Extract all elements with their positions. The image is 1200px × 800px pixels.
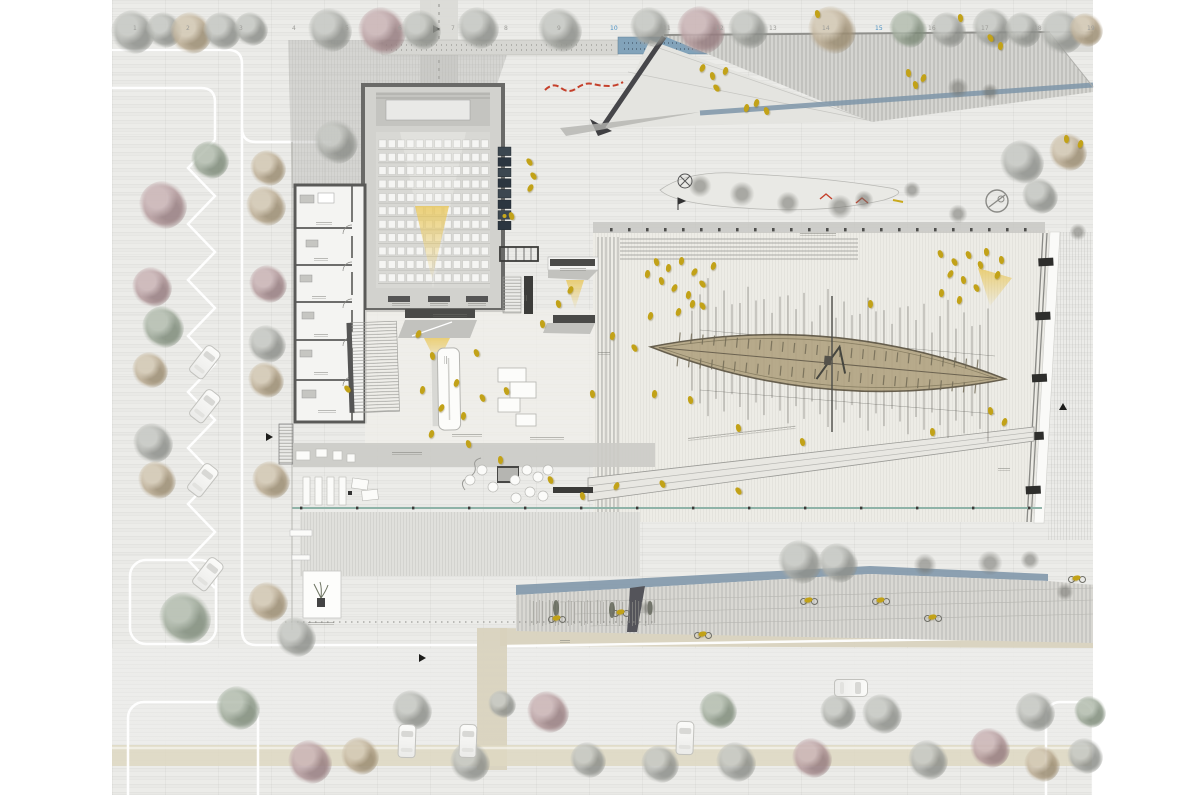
tree — [252, 461, 290, 499]
grid-number: 19 — [1087, 26, 1095, 32]
tree — [216, 686, 260, 730]
grid-number: 3 — [239, 26, 243, 32]
red-dashed-squiggle — [545, 82, 623, 91]
windshield — [203, 350, 216, 362]
cyclist-figure — [800, 596, 818, 605]
grid-number: 11 — [663, 26, 671, 32]
plan-annotation — [998, 468, 1010, 471]
tree — [248, 325, 286, 363]
sculpture-plot — [303, 571, 341, 618]
bush — [827, 194, 853, 220]
cyclist-figure — [1068, 574, 1086, 583]
person-figure — [930, 428, 935, 436]
plan-annotation — [433, 314, 467, 317]
tree — [132, 267, 172, 307]
auditorium — [363, 85, 511, 310]
bush — [729, 181, 755, 207]
windshield — [201, 468, 214, 480]
tree — [862, 694, 902, 734]
tree — [133, 423, 173, 463]
person-figure — [1064, 135, 1069, 143]
person-figure — [540, 320, 546, 328]
windshield — [679, 728, 691, 734]
bush — [948, 204, 968, 224]
tree — [138, 461, 176, 499]
tree — [818, 543, 858, 583]
bush — [776, 191, 800, 215]
tree — [792, 738, 832, 778]
bush — [1069, 223, 1087, 241]
plan-annotation — [560, 268, 586, 271]
cyclist-figure — [548, 614, 566, 623]
grid-number: 2 — [186, 26, 190, 32]
cyclist-figure — [612, 608, 630, 617]
tree — [908, 740, 948, 780]
main-stair — [350, 321, 399, 413]
grid-number: 14 — [822, 26, 830, 32]
cyclist-figure — [694, 630, 712, 639]
windshield — [206, 562, 219, 574]
tree — [970, 728, 1010, 768]
tree — [159, 592, 211, 644]
tree — [142, 306, 184, 348]
windshield — [855, 682, 861, 694]
plan-annotation — [444, 356, 447, 364]
grid-number: 17 — [981, 26, 989, 32]
plan-annotation — [452, 434, 482, 437]
bush — [903, 181, 921, 199]
windshield — [462, 731, 474, 737]
grid-number: 6 — [398, 26, 402, 32]
rear-window — [196, 576, 208, 587]
grid-number: 4 — [292, 26, 296, 32]
bush — [1056, 583, 1074, 601]
tree — [1069, 13, 1103, 47]
cyclist-figure — [924, 613, 942, 622]
plan-annotation — [468, 303, 486, 306]
tree — [250, 150, 286, 186]
rear-window — [191, 482, 203, 493]
tree — [457, 7, 499, 49]
rear-window — [462, 748, 474, 752]
grid-number: 7 — [451, 26, 455, 32]
bush — [854, 190, 874, 210]
tree — [570, 742, 606, 778]
cyclist-figure — [872, 596, 890, 605]
tree — [488, 690, 516, 718]
tree — [132, 352, 168, 388]
tree — [288, 740, 332, 784]
road-car — [397, 724, 416, 759]
bush — [981, 83, 999, 101]
person-figure — [906, 69, 912, 77]
tree — [527, 691, 569, 733]
west-stair — [279, 424, 293, 464]
person-figure — [498, 456, 503, 464]
tree — [1024, 746, 1060, 782]
tree — [248, 362, 284, 398]
tree — [341, 737, 379, 775]
person-figure — [999, 256, 1005, 264]
grid-number: 10 — [610, 26, 618, 32]
plan-annotation — [430, 303, 448, 306]
grid-number: 9 — [557, 26, 561, 32]
tree — [1067, 738, 1103, 774]
plan-annotation — [316, 222, 332, 225]
windshield — [401, 731, 413, 737]
grid-number: 18 — [1034, 26, 1042, 32]
grid-number: 1 — [133, 26, 137, 32]
plan-annotation — [392, 303, 410, 306]
tree — [820, 694, 856, 730]
glass-facade-line — [292, 507, 1042, 510]
road-car — [675, 721, 694, 756]
tree — [1022, 178, 1058, 214]
plan-annotation — [530, 437, 564, 440]
person-figure — [868, 300, 873, 308]
plan-annotation — [314, 372, 328, 375]
tree — [191, 141, 229, 179]
bush — [977, 550, 1003, 576]
plan-annotation — [524, 295, 527, 301]
rear-window — [679, 745, 691, 749]
plan-annotation — [392, 452, 422, 455]
tree — [246, 186, 286, 226]
person-figure — [590, 390, 596, 398]
rear-window — [193, 408, 205, 419]
site-plan-canvas: 12345678910111213141516171819 — [0, 0, 1200, 800]
tree — [889, 10, 927, 48]
grid-number: 13 — [769, 26, 777, 32]
tree — [716, 742, 756, 782]
person-figure — [984, 248, 989, 256]
tree — [1015, 692, 1055, 732]
tree — [249, 265, 287, 303]
grid-number: 5 — [345, 26, 349, 32]
grid-number: 8 — [504, 26, 508, 32]
windshield — [203, 394, 216, 406]
tree — [139, 181, 187, 229]
bush — [913, 553, 937, 577]
road-car — [458, 724, 477, 759]
tree — [1074, 696, 1106, 728]
bush — [1020, 550, 1040, 570]
bush — [947, 77, 969, 99]
plan-annotation — [598, 352, 610, 355]
plan-annotation — [314, 334, 328, 337]
tree — [248, 582, 288, 622]
tree — [641, 745, 679, 783]
plan-annotation — [308, 622, 334, 625]
rear-window — [840, 682, 844, 694]
entrance-light-cone — [566, 280, 584, 309]
road-car — [834, 679, 868, 697]
rear-window — [401, 748, 413, 752]
plan-annotation — [314, 258, 328, 261]
plan-annotation — [560, 640, 570, 643]
plan-annotation — [800, 233, 836, 236]
bush — [688, 174, 712, 198]
grid-number: 15 — [875, 26, 883, 32]
tree — [778, 540, 822, 584]
grid-number: 16 — [928, 26, 936, 32]
tree — [401, 10, 441, 50]
tree — [728, 9, 768, 49]
tree — [314, 120, 358, 164]
grid-number: 12 — [716, 26, 724, 32]
bush — [640, 600, 656, 616]
tree — [699, 691, 737, 729]
plan-annotation — [312, 296, 326, 299]
rear-window — [193, 364, 205, 375]
north-logo-icon — [986, 190, 1008, 212]
plan-annotation — [318, 410, 336, 413]
